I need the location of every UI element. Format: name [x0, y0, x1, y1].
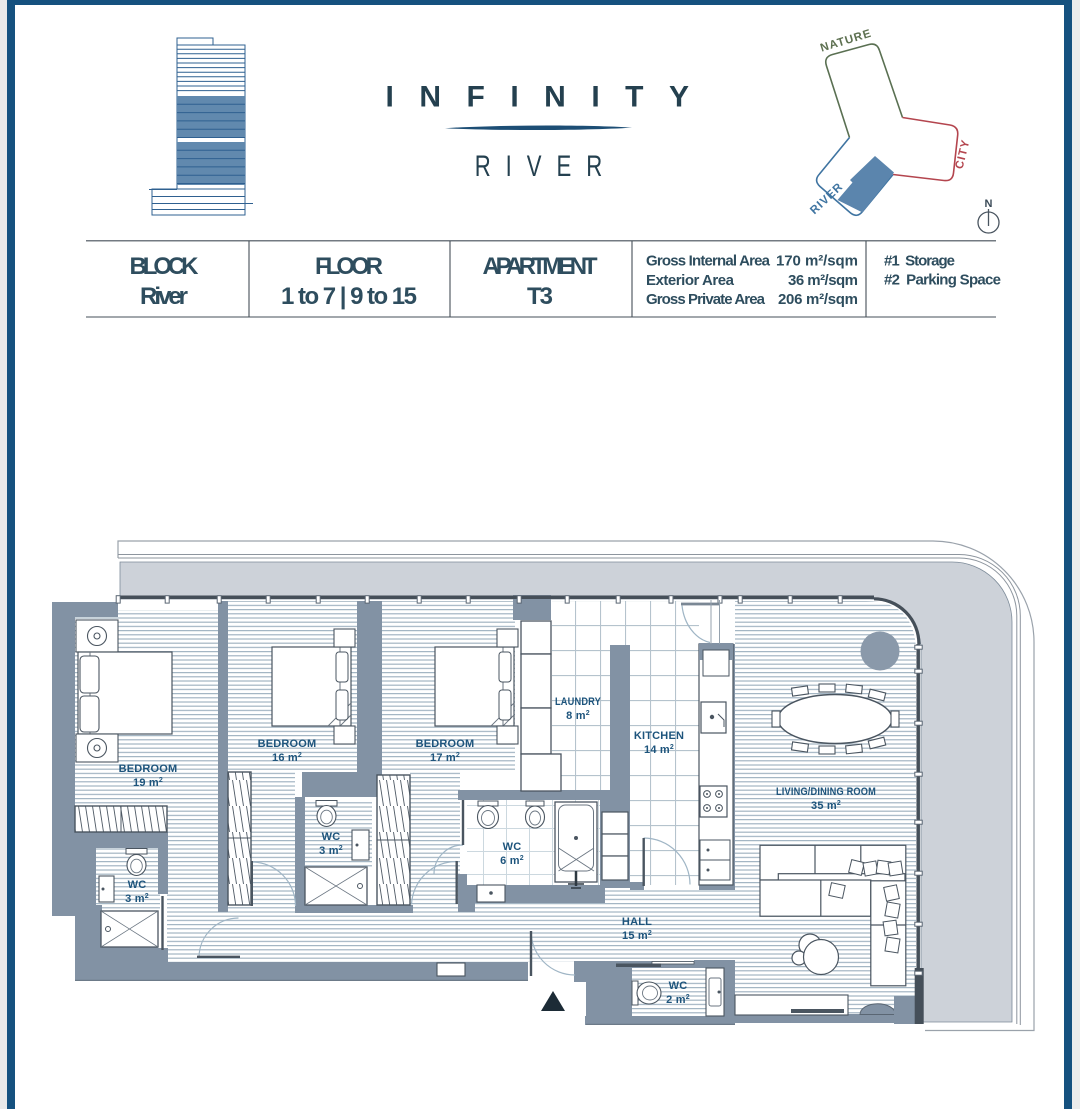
- svg-text:Exterior Area: Exterior Area: [646, 272, 735, 289]
- svg-text:Gross Internal Area: Gross Internal Area: [646, 253, 771, 270]
- svg-text:RIVER: RIVER: [475, 149, 618, 183]
- svg-text:FLOOR: FLOOR: [315, 253, 383, 280]
- svg-text:170 m²/sqm: 170 m²/sqm: [776, 253, 858, 270]
- svg-text:INFINITY: INFINITY: [386, 81, 715, 114]
- svg-text:BEDROOM: BEDROOM: [416, 738, 475, 750]
- svg-text:BEDROOM: BEDROOM: [258, 738, 317, 750]
- svg-text:17 m2: 17 m2: [430, 752, 460, 764]
- svg-text:KITCHEN: KITCHEN: [634, 730, 684, 742]
- svg-text:16 m2: 16 m2: [272, 752, 302, 764]
- svg-text:N: N: [985, 198, 993, 210]
- svg-text:LAUNDRY: LAUNDRY: [555, 696, 601, 708]
- svg-text:APARTMENT: APARTMENT: [483, 253, 598, 280]
- svg-text:T3: T3: [527, 283, 553, 310]
- svg-text:36 m²/sqm: 36 m²/sqm: [788, 272, 858, 289]
- svg-text:#2 Parking Space: #2 Parking Space: [884, 272, 1001, 289]
- svg-text:#1 Storage: #1 Storage: [884, 253, 955, 270]
- svg-text:WC: WC: [669, 980, 688, 992]
- svg-text:WC: WC: [503, 841, 522, 853]
- svg-text:BLOCK: BLOCK: [130, 253, 200, 280]
- svg-text:BEDROOM: BEDROOM: [119, 763, 178, 775]
- svg-text:WC: WC: [322, 831, 341, 843]
- svg-text:River: River: [140, 283, 188, 310]
- svg-text:WC: WC: [128, 879, 147, 891]
- svg-text:35 m2: 35 m2: [811, 800, 841, 812]
- svg-text:1 to 7 | 9 to 15: 1 to 7 | 9 to 15: [281, 283, 417, 310]
- svg-text:14 m2: 14 m2: [644, 744, 674, 756]
- svg-text:LIVING/DINING ROOM: LIVING/DINING ROOM: [776, 786, 876, 798]
- svg-text:Gross Private Area: Gross Private Area: [646, 291, 766, 308]
- svg-text:206 m²/sqm: 206 m²/sqm: [778, 291, 858, 308]
- svg-text:19 m2: 19 m2: [133, 777, 163, 789]
- svg-text:HALL: HALL: [622, 916, 652, 928]
- svg-text:15 m2: 15 m2: [622, 930, 652, 942]
